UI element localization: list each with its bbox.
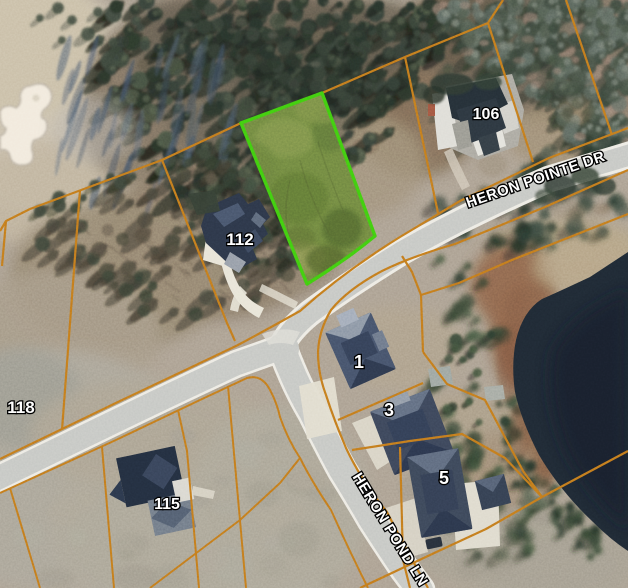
svg-text:5: 5	[439, 468, 449, 488]
svg-text:112: 112	[226, 230, 253, 249]
svg-text:115: 115	[154, 496, 180, 513]
svg-text:3: 3	[384, 400, 394, 420]
svg-text:118: 118	[7, 398, 34, 417]
svg-text:1: 1	[354, 352, 364, 372]
svg-text:106: 106	[473, 106, 500, 123]
